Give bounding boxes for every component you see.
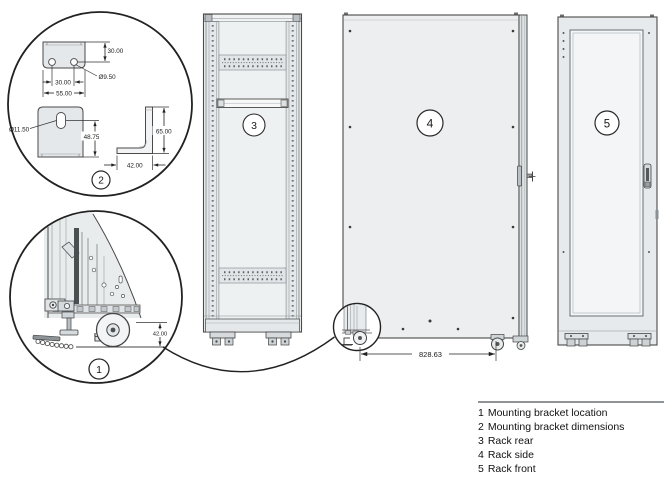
bracket-dimensions-detail: 30.00 30.00 Ø9.50 55.00 bbox=[8, 12, 192, 196]
horizontal-bar bbox=[217, 99, 288, 108]
rack-rear-base bbox=[204, 316, 301, 345]
bracket-location-detail-circle bbox=[334, 302, 381, 351]
legend-item-3: 3Rack rear bbox=[478, 435, 666, 449]
svg-text:42.00: 42.00 bbox=[127, 163, 143, 170]
front-door bbox=[570, 30, 643, 316]
callout-number-2: 2 bbox=[98, 176, 104, 187]
legend-item-5: 5Rack front bbox=[478, 463, 666, 477]
bracket-hole bbox=[49, 59, 56, 66]
door-handle bbox=[644, 164, 651, 188]
rack-rear-view: 3 bbox=[204, 14, 302, 345]
bracket-slot bbox=[57, 113, 66, 129]
rack-diagram-page: 3 bbox=[0, 0, 666, 482]
bracket-side-plate bbox=[38, 107, 83, 157]
legend-item-4: 4Rack side bbox=[478, 449, 666, 463]
legend-item-2: 2Mounting bracket dimensions bbox=[478, 421, 666, 435]
legend: 1Mounting bracket location 2Mounting bra… bbox=[478, 407, 666, 477]
legend-item-1: 1Mounting bracket location bbox=[478, 407, 666, 421]
dimension-caster-spacing: 828.63 bbox=[360, 341, 496, 361]
bracket-hole bbox=[71, 59, 78, 66]
bracket-top-plate bbox=[43, 42, 85, 68]
svg-text:30.00: 30.00 bbox=[108, 48, 124, 55]
hinge-mark bbox=[656, 210, 659, 219]
svg-text:65.00: 65.00 bbox=[156, 128, 172, 135]
callout-number-5: 5 bbox=[604, 119, 610, 131]
svg-text:48.75: 48.75 bbox=[84, 134, 100, 141]
callout-number-4: 4 bbox=[427, 117, 434, 131]
rack-front-view: 5 bbox=[558, 15, 659, 347]
dimension-caster-spacing-value: 828.63 bbox=[419, 350, 442, 359]
svg-text:42.00: 42.00 bbox=[153, 331, 168, 337]
callout-number-3: 3 bbox=[251, 120, 257, 132]
svg-text:55.00: 55.00 bbox=[56, 90, 72, 97]
rack-side-view: 4 bbox=[343, 13, 536, 351]
svg-text:Ø9.50: Ø9.50 bbox=[99, 74, 117, 81]
perforated-strip-bottom bbox=[219, 268, 286, 283]
legend-rule bbox=[478, 401, 664, 403]
svg-text:Ø11.50: Ø11.50 bbox=[9, 127, 30, 134]
detail-leader-line bbox=[163, 337, 335, 372]
perforated-strip-top bbox=[219, 55, 286, 70]
svg-text:30.00: 30.00 bbox=[55, 80, 71, 87]
bracket-location-detail: 42.00 1 bbox=[10, 200, 182, 383]
callout-number-1: 1 bbox=[96, 364, 102, 376]
